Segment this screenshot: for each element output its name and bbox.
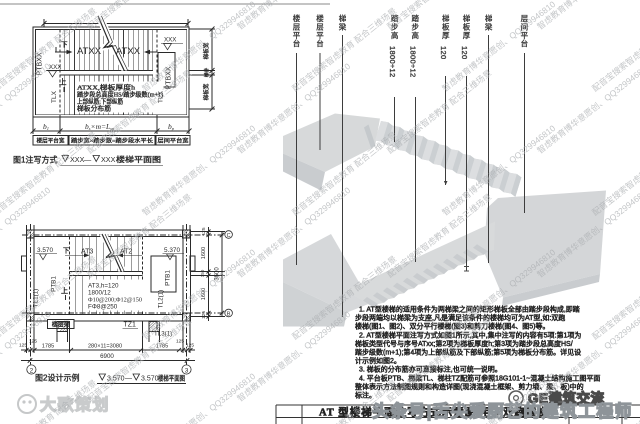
svg-text:配音宝搜索智虑教育 配合三维场景: 配音宝搜索智虑教育 配合三维场景	[385, 68, 493, 156]
svg-text:踏步级数(m+1);第4项为上部纵筋及下部纵筋;第5项为梯板: 踏步级数(m+1);第4项为上部纵筋及下部纵筋;第5项为梯板分布筋。详见设	[355, 348, 581, 357]
svg-text:125: 125	[176, 339, 184, 345]
svg-text:1600: 1600	[201, 247, 207, 259]
svg-text:125: 125	[201, 227, 207, 235]
svg-text:ATXX: ATXX	[116, 46, 141, 57]
svg-text:bp: bp	[168, 122, 175, 131]
svg-text:层间平台宽: 层间平台宽	[158, 137, 189, 145]
svg-text:梯井: 梯井	[203, 68, 210, 78]
svg-text:楼层平台宽: 楼层平台宽	[37, 137, 65, 145]
svg-text:图2设计示例: 图2设计示例	[35, 373, 79, 383]
svg-text:1785: 1785	[42, 344, 54, 350]
svg-text:B: B	[227, 312, 231, 318]
svg-text:XXX: XXX	[164, 37, 176, 44]
svg-text:梯板分布筋: 梯板分布筋	[77, 104, 111, 113]
svg-text:楼层平台: 楼层平台	[293, 13, 301, 48]
svg-text:b1: b1	[43, 122, 49, 131]
svg-text:计示例如图2。: 计示例如图2。	[355, 356, 401, 365]
svg-text:梯梁: 梯梁	[485, 13, 493, 31]
svg-text:—: —	[84, 155, 92, 164]
svg-text:配音宝搜索智虑教育 配合三维场景: 配音宝搜索智虑教育 配合三维场景	[385, 0, 493, 32]
svg-text:3.570: 3.570	[37, 247, 53, 254]
svg-text:梯板宽: 梯板宽	[202, 83, 210, 100]
svg-text:梯梁: 梯梁	[339, 13, 347, 31]
svg-text:楼梯平面图: 楼梯平面图	[158, 374, 185, 383]
svg-text:—: —	[125, 376, 132, 383]
svg-text:踏步高1800÷12: 踏步高1800÷12	[409, 13, 420, 77]
svg-text:TZ1: TZ1	[124, 322, 137, 329]
svg-text:6900: 6900	[100, 353, 114, 360]
svg-text:280×11=3080: 280×11=3080	[88, 344, 122, 350]
svg-text:3: 3	[185, 367, 189, 374]
svg-text:125: 125	[201, 311, 207, 319]
svg-text:2: 2	[30, 367, 34, 374]
svg-text:ATXX: ATXX	[77, 46, 102, 57]
svg-text:150: 150	[200, 269, 205, 277]
svg-text:125: 125	[19, 343, 27, 349]
svg-text:楼层平台: 楼层平台	[316, 13, 324, 48]
svg-text:1800/12: 1800/12	[88, 290, 111, 297]
svg-text:125: 125	[186, 343, 194, 349]
svg-text:C: C	[227, 233, 231, 239]
svg-text:上部纵筋;下部纵筋: 上部纵筋;下部纵筋	[77, 97, 123, 106]
svg-text:125: 125	[29, 339, 37, 345]
svg-text:FΦ8@250: FΦ8@250	[88, 304, 118, 311]
svg-text:5.370: 5.370	[164, 247, 180, 254]
svg-text:智虑教育博华意愿创、QQ329946810: 智虑教育博华意愿创、QQ329946810	[440, 0, 557, 94]
svg-text:TLX: TLX	[51, 90, 58, 103]
svg-text:下: 下	[63, 247, 69, 255]
svg-text:ATXX,梯板厚度h: ATXX,梯板厚度h	[77, 83, 136, 92]
svg-text:楼梯平面图: 楼梯平面图	[116, 155, 161, 164]
svg-text:梯板厚120: 梯板厚120	[439, 13, 450, 59]
svg-text:智虑教育博华意愿创、QQ329946810: 智虑教育博华意愿创、QQ329946810	[140, 0, 257, 94]
svg-text:3.570: 3.570	[141, 376, 159, 383]
svg-text:AT3,h=120: AT3,h=120	[88, 283, 119, 290]
svg-text:PTB1: PTB1	[165, 270, 172, 286]
svg-text:Φ10@200;Φ12@150: Φ10@200;Φ12@150	[88, 297, 142, 304]
svg-text:上: 上	[59, 78, 67, 87]
svg-text:智虑教育博华意愿创、QQ329946810: 智虑教育博华意愿创、QQ329946810	[535, 61, 640, 156]
svg-text:TL2(1): TL2(1)	[158, 290, 165, 309]
svg-text:梯板厚120: 梯板厚120	[460, 13, 471, 59]
svg-text:XXX: XXX	[101, 155, 116, 164]
